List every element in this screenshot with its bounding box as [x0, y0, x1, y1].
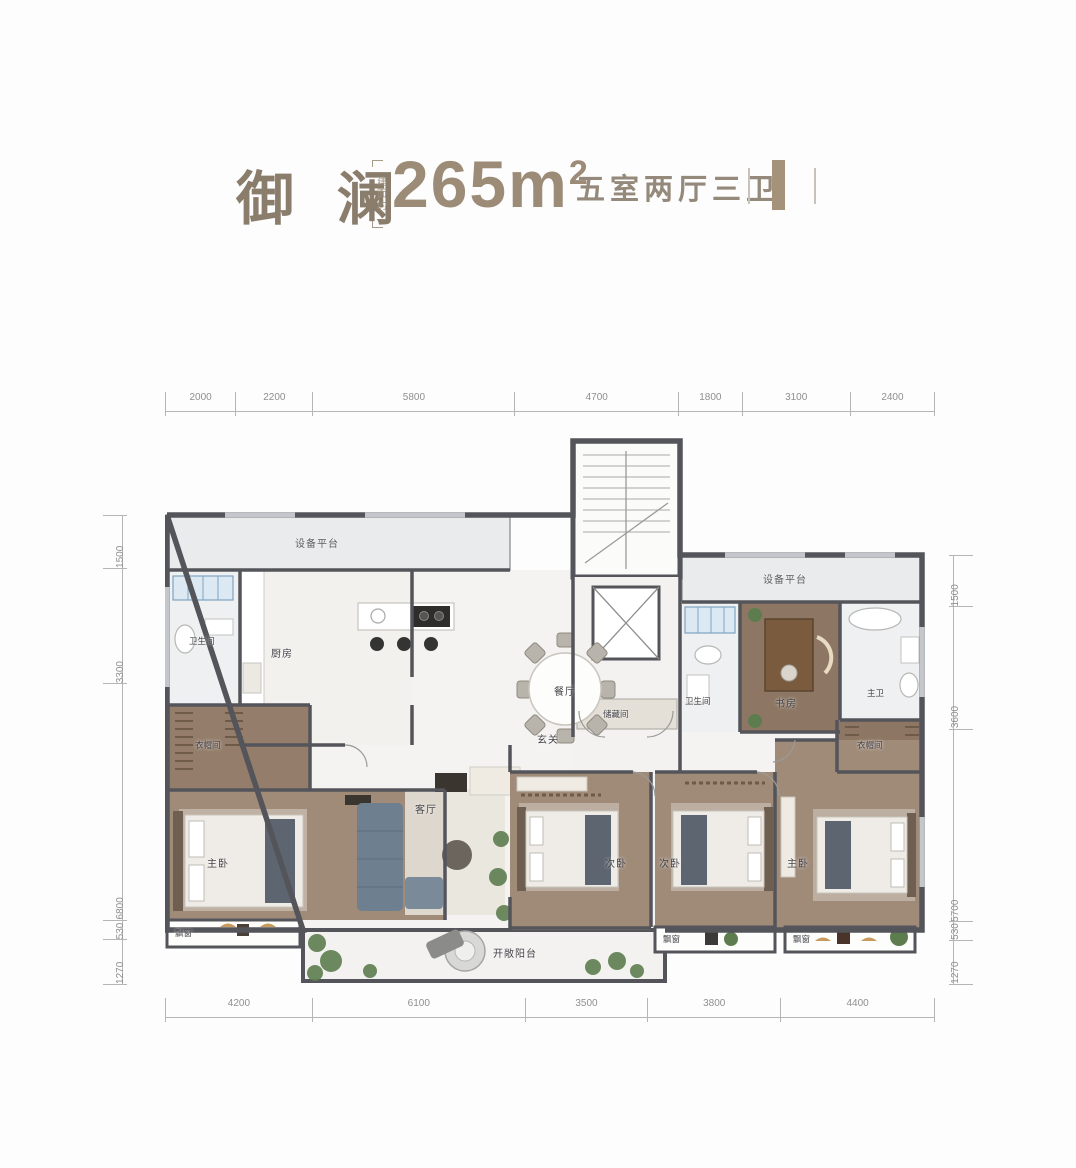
room-label-dining: 餐厅 — [554, 683, 576, 698]
room-label-bedroom2: 次卧 — [605, 855, 627, 870]
area-value: 265m2 — [392, 146, 590, 222]
room-label-master-left: 主卧 — [207, 855, 229, 870]
room-label-cloak-right: 衣帽间 — [857, 739, 883, 751]
room-label-bath-mid: 卫生间 — [685, 695, 711, 707]
dim-right: 1500 3600 5700 530 1270 — [949, 555, 973, 985]
floorplan-page: 御 澜 建面约 265m2 五室两厅三卫 2000 2200 5800 4700… — [0, 0, 1076, 1168]
room-label-bay-right: 飘窗 — [793, 933, 810, 945]
room-label-storage: 储藏间 — [603, 708, 629, 720]
dim-left: 1500 3300 6800 530 1270 — [103, 515, 127, 985]
room-label-equip-left: 设备平台 — [295, 535, 339, 550]
building-bar-highlight — [772, 160, 785, 210]
room-label-kitchen: 厨房 — [271, 645, 293, 660]
room-label-equip-right: 设备平台 — [763, 571, 807, 586]
building-bar-1 — [748, 168, 750, 204]
room-label-bath-left: 卫生间 — [189, 635, 215, 647]
room-label-balcony: 开敞阳台 — [493, 945, 537, 960]
floorplan-drawing — [165, 437, 935, 985]
room-label-cloak-left: 衣帽间 — [195, 739, 221, 751]
room-label-living: 客厅 — [415, 801, 437, 816]
room-label-bay-left: 飘窗 — [175, 927, 192, 939]
dim-bottom: 4200 6100 3500 3800 4400 — [165, 998, 935, 1022]
dim-top: 2000 2200 5800 4700 1800 3100 2400 — [165, 392, 935, 416]
room-label-master-right: 主卧 — [787, 855, 809, 870]
area-prefix-label: 建面约 — [373, 176, 388, 212]
building-bar-3 — [814, 168, 816, 204]
room-label-study: 书房 — [775, 695, 797, 710]
area-prefix: 建面约 — [372, 160, 388, 228]
room-label-master-bath: 主卫 — [867, 687, 884, 699]
room-label-bay-mid: 飘窗 — [663, 933, 680, 945]
room-label-bedroom3: 次卧 — [659, 855, 681, 870]
floorplan: 设备平台 设备平台 卫生间 厨房 餐厅 衣帽间 主卧 飘窗 客厅 玄关 储藏间 … — [165, 437, 935, 985]
room-label-entry: 玄关 — [537, 731, 559, 746]
